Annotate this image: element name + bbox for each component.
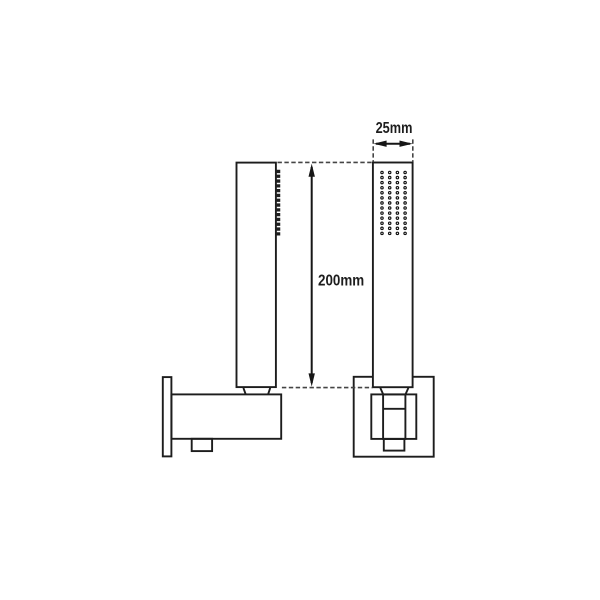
svg-text:200mm: 200mm (318, 273, 364, 290)
svg-text:25mm: 25mm (376, 120, 413, 137)
